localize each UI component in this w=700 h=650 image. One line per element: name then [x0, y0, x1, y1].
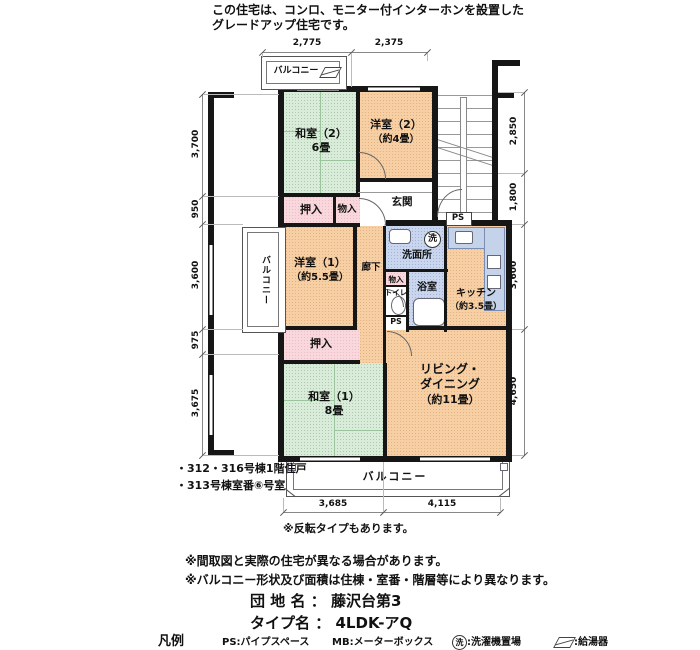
- dim-ext: [498, 92, 524, 93]
- neighbor-window: [209, 245, 213, 315]
- label-ps-toilet: PS: [385, 317, 407, 327]
- balcony-bottom-label: バルコニー: [340, 470, 450, 484]
- label-toilet: トイレ: [383, 288, 409, 297]
- wall-oshiire-bottom: [282, 223, 360, 227]
- wall-yoshitsu1-bottom: [282, 326, 357, 330]
- dim-bottom-1: 3,685: [303, 499, 363, 510]
- dim-bottom-2: 4,115: [412, 499, 472, 510]
- label-genkan: 玄関: [380, 196, 424, 209]
- footnote-unit1: ・312・316号棟1階住戸: [176, 462, 326, 476]
- note-2: ※バルコニー形状及び面積は住棟・室番・階層等により異なります。: [185, 573, 605, 588]
- wall-senmenjo-bottom: [384, 269, 448, 272]
- dim-ext: [203, 354, 279, 355]
- legend-washer-icon: 洗: [452, 635, 467, 650]
- legend-boiler-icon: [553, 637, 576, 648]
- label-senmenjo: 洗面所: [394, 250, 440, 263]
- dim-ext: [427, 53, 428, 61]
- dim-ext: [512, 329, 524, 330]
- tatami-line: [321, 160, 360, 161]
- wall-monoiire-toilet: [384, 285, 408, 287]
- wall-yoshitsu2-right: [432, 86, 438, 226]
- legend-ps: PS:パイプスペース: [222, 637, 332, 650]
- label-kitchen: キッチン （約3.5畳）: [444, 288, 508, 313]
- window-yoshitsu2: [368, 87, 420, 91]
- bathtub: [413, 298, 445, 326]
- footnote-unit2: ・313号棟室番⑥号室: [176, 479, 326, 493]
- washitsu2-name: 和室（2）: [295, 127, 347, 140]
- estate-type-row: タイプ名 ： 4LDK-アQ: [250, 614, 490, 633]
- label-oshiire-mid: 押入: [286, 337, 356, 351]
- dim-right-1: 2,850: [509, 111, 519, 151]
- genkan-step-line: [358, 192, 432, 193]
- balcony-left-label: バルコニー: [254, 240, 270, 320]
- dim-left-4: 975: [191, 320, 201, 360]
- kitchen-name: キッチン: [456, 288, 496, 299]
- estate-name-row: 団 地 名 ： 藤沢台第3: [250, 592, 490, 611]
- dim-ext: [203, 196, 279, 197]
- dim-ext: [500, 498, 501, 512]
- legend-mb: MB:メーターボックス: [332, 637, 452, 650]
- dim-ext: [283, 498, 284, 512]
- window-living: [420, 457, 490, 461]
- label-monoiire-top: 物入: [334, 204, 360, 216]
- window-washitsu1: [300, 457, 360, 461]
- yoshitsu2-name: 洋室（2）: [370, 118, 422, 131]
- wall-washitsu1-right: [383, 363, 387, 457]
- label-yokushitsu: 浴室: [408, 282, 446, 295]
- yoshitsu1-size: （約5.5畳）: [291, 272, 349, 283]
- wall-oshiire-top: [282, 193, 360, 197]
- header-note-line2: グレードアップ住宅です。: [212, 18, 552, 33]
- balcony-top-label: バルコニー: [269, 66, 323, 77]
- dim-ext: [203, 224, 243, 225]
- living-line2: ダイニング: [420, 377, 480, 391]
- kitchen-stove: [487, 255, 501, 269]
- washing-machine-icon: 洗: [424, 231, 441, 248]
- dim-top-1: 2,775: [282, 38, 332, 49]
- corridor: [356, 226, 386, 366]
- footnote-reverse: ※反転タイプもあります。: [283, 522, 483, 536]
- dim-left-5: 3,675: [191, 383, 201, 423]
- dim-right-3: 3,600: [509, 255, 519, 295]
- label-yoshitsu2: 洋室（2） （約4畳）: [358, 118, 434, 146]
- kitchen-size: （約3.5畳）: [450, 302, 502, 312]
- dim-left-2: 950: [191, 189, 201, 229]
- label-washitsu1: 和室（1） 8畳: [288, 390, 380, 418]
- wall-stairwell-top-stub: [492, 60, 520, 66]
- estate-type-value: 4LDK-アQ: [336, 614, 413, 632]
- dim-ext: [498, 173, 524, 174]
- note-1: ※間取図と実際の住宅が異なる場合があります。: [185, 554, 585, 569]
- living-line1: リビング・: [420, 362, 480, 376]
- neighbor-window: [209, 375, 213, 435]
- washitsu1-size: 8畳: [325, 404, 344, 417]
- dim-ext: [383, 462, 384, 512]
- dimline-top: [262, 52, 428, 53]
- living-line3: （約11畳）: [420, 393, 479, 406]
- balcony-post: [500, 463, 508, 471]
- estate-type-label: タイプ名: [250, 614, 310, 632]
- dim-left-3: 3,600: [191, 255, 201, 295]
- label-ps-entry: PS: [446, 213, 470, 224]
- label-yoshitsu1: 洋室（1） （約5.5畳）: [284, 256, 356, 284]
- dim-top-2: 2,375: [364, 38, 414, 49]
- dim-right-4: 4,650: [509, 371, 519, 411]
- dim-right-2: 1,800: [509, 177, 519, 217]
- dim-ext: [262, 53, 263, 58]
- washitsu2-size: 6畳: [312, 141, 331, 154]
- yoshitsu2-size: （約4畳）: [373, 134, 420, 145]
- wall-bath-kitchen: [444, 224, 447, 332]
- dimline-left: [202, 94, 203, 456]
- wall-genkan-bottom: [386, 220, 436, 226]
- dimline-right: [524, 92, 525, 456]
- estate-name-value: 藤沢台第3: [331, 592, 401, 610]
- label-rouka: 廊下: [356, 262, 386, 274]
- kitchen-stove: [487, 275, 501, 289]
- label-living: リビング・ ダイニング （約11畳）: [398, 362, 502, 407]
- estate-name-label: 団 地 名: [250, 592, 305, 610]
- kitchen-sink: [455, 231, 473, 244]
- yoshitsu1-name: 洋室（1）: [294, 256, 346, 269]
- dim-ext: [203, 329, 243, 330]
- washbasin: [389, 229, 411, 244]
- estate-type-sep: ：: [315, 614, 330, 632]
- wall-oshiire-mid-bottom: [282, 360, 360, 364]
- dim-ext: [351, 53, 352, 87]
- tatami-line: [334, 430, 386, 431]
- estate-name-sep: ：: [311, 592, 326, 610]
- washitsu1-name: 和室（1）: [308, 390, 360, 403]
- label-oshiire-top: 押入: [288, 203, 334, 217]
- dim-ext: [203, 455, 279, 456]
- dim-left-1: 3,700: [191, 124, 201, 164]
- wall-stairwell-right: [492, 60, 498, 226]
- legend-washer-text: :洗濯機置場: [467, 637, 547, 650]
- wall-kitchen-living: [408, 326, 506, 330]
- dim-ext: [512, 455, 524, 456]
- legend-title: 凡例: [158, 634, 198, 650]
- label-monoiire-small: 物入: [384, 275, 408, 284]
- dim-ext: [512, 224, 524, 225]
- neighbor-wall-top-stub: [214, 92, 234, 98]
- legend-boiler-text: :給湯器: [574, 637, 634, 650]
- floorplan-page: この住宅は、コンロ、モニター付インターホンを設置した グレードアップ住宅です。 …: [0, 0, 700, 650]
- dim-ext: [203, 94, 279, 95]
- label-washitsu2: 和室（2） 6畳: [284, 127, 358, 155]
- header-note-line1: この住宅は、コンロ、モニター付インターホンを設置した: [212, 3, 552, 18]
- dimline-bottom: [283, 512, 501, 513]
